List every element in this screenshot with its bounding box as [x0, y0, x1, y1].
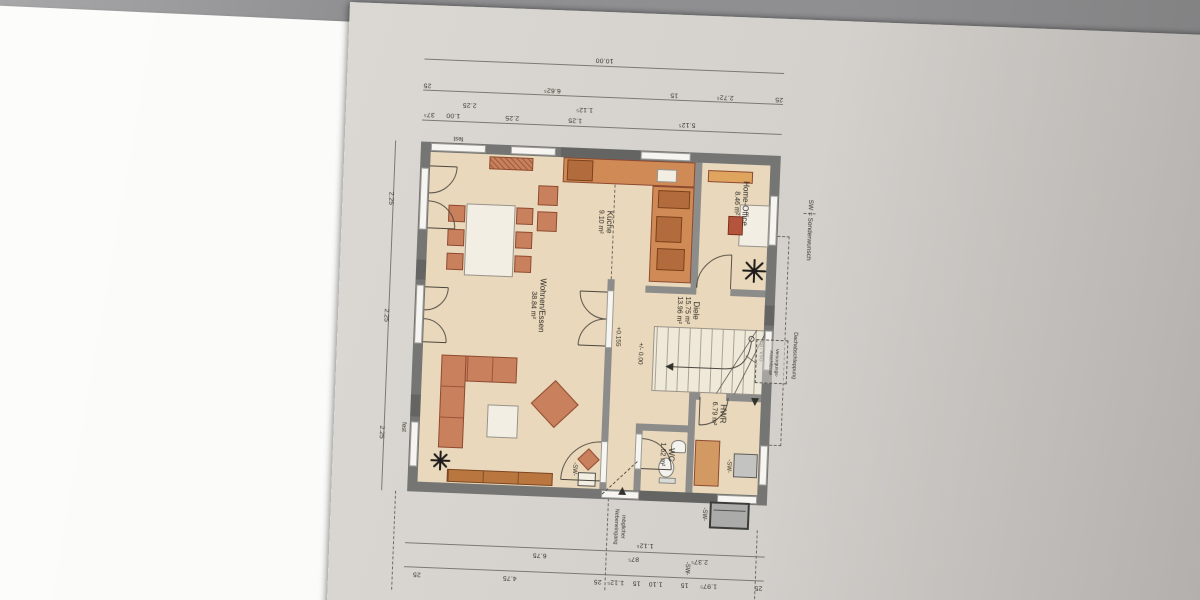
floor-plan-photo: 25 1.97⁵ 15 1.10 15 1.12⁵ 25 4.75 25 2.3…	[0, 0, 1200, 600]
room-name: HWR	[717, 402, 728, 426]
room-name: Diele	[691, 297, 702, 325]
room-area: 1.62 m²	[657, 442, 666, 466]
special-wish-mark: -SW-	[682, 562, 690, 576]
stair-arrowhead	[665, 362, 673, 370]
plant-icon	[743, 260, 766, 283]
level-mark-hall: +/- 0.00	[635, 342, 644, 365]
utility-line2: Anschlüsse	[766, 348, 773, 377]
side-entrance-line2: Nebeneingang	[611, 509, 619, 545]
room-name: WC	[666, 443, 677, 467]
fixed-glazing-note: fest	[454, 135, 464, 141]
door-arc-living	[561, 440, 602, 481]
plant-icon	[431, 451, 450, 470]
room-name: Küche	[604, 210, 615, 234]
floor-plan-drawing: 25 1.97⁵ 15 1.10 15 1.12⁵ 25 4.75 25 2.3…	[338, 0, 872, 600]
room-label-hall: Diele 15.75 m² 13.96 m²	[674, 296, 701, 325]
side-entrance-line1: möglicher	[618, 509, 626, 545]
room-label-hwr: HWR 6.79 m²	[709, 401, 728, 425]
fixed-glazing-note: fest	[399, 422, 407, 432]
door-arc-office	[696, 254, 731, 289]
room-area: 15.75 m²	[682, 296, 691, 324]
double-door-arcs	[578, 291, 607, 346]
room-name: Home-Office	[739, 181, 750, 226]
special-wish-mark: -SW-	[723, 459, 731, 473]
side-entrance-label: möglicher Nebeneingang	[611, 509, 626, 545]
utility-connections-label: Versorgungs- Anschlüsse	[766, 348, 779, 377]
room-label-office: Home-Office 8.46 m²	[731, 181, 751, 226]
level-mark-living: +0.155	[613, 326, 622, 346]
room-area: 9.10 m²	[596, 210, 605, 234]
window-swing-arcs	[423, 287, 448, 343]
room-area-2: 13.96 m²	[674, 296, 683, 324]
front-door-dashed-leaf	[602, 460, 637, 495]
special-wish-mark: -SW-	[699, 507, 707, 521]
room-label-living: Wohnen/Essen 38.84 m²	[528, 278, 548, 333]
room-label-kitchen: Küche 9.10 m²	[596, 210, 615, 234]
terrace-door-arcs	[428, 166, 457, 229]
plan-linework	[338, 0, 872, 600]
room-area: 6.79 m²	[709, 401, 718, 425]
room-label-wc: WC 1.62 m²	[657, 442, 676, 466]
stair-walkline	[673, 339, 751, 370]
special-wish-mark: -SW-	[569, 462, 577, 476]
hwr-marker	[751, 398, 759, 406]
plants	[431, 247, 766, 482]
utility-line1: Versorgungs-	[772, 349, 779, 378]
entrance-marker	[618, 487, 626, 495]
